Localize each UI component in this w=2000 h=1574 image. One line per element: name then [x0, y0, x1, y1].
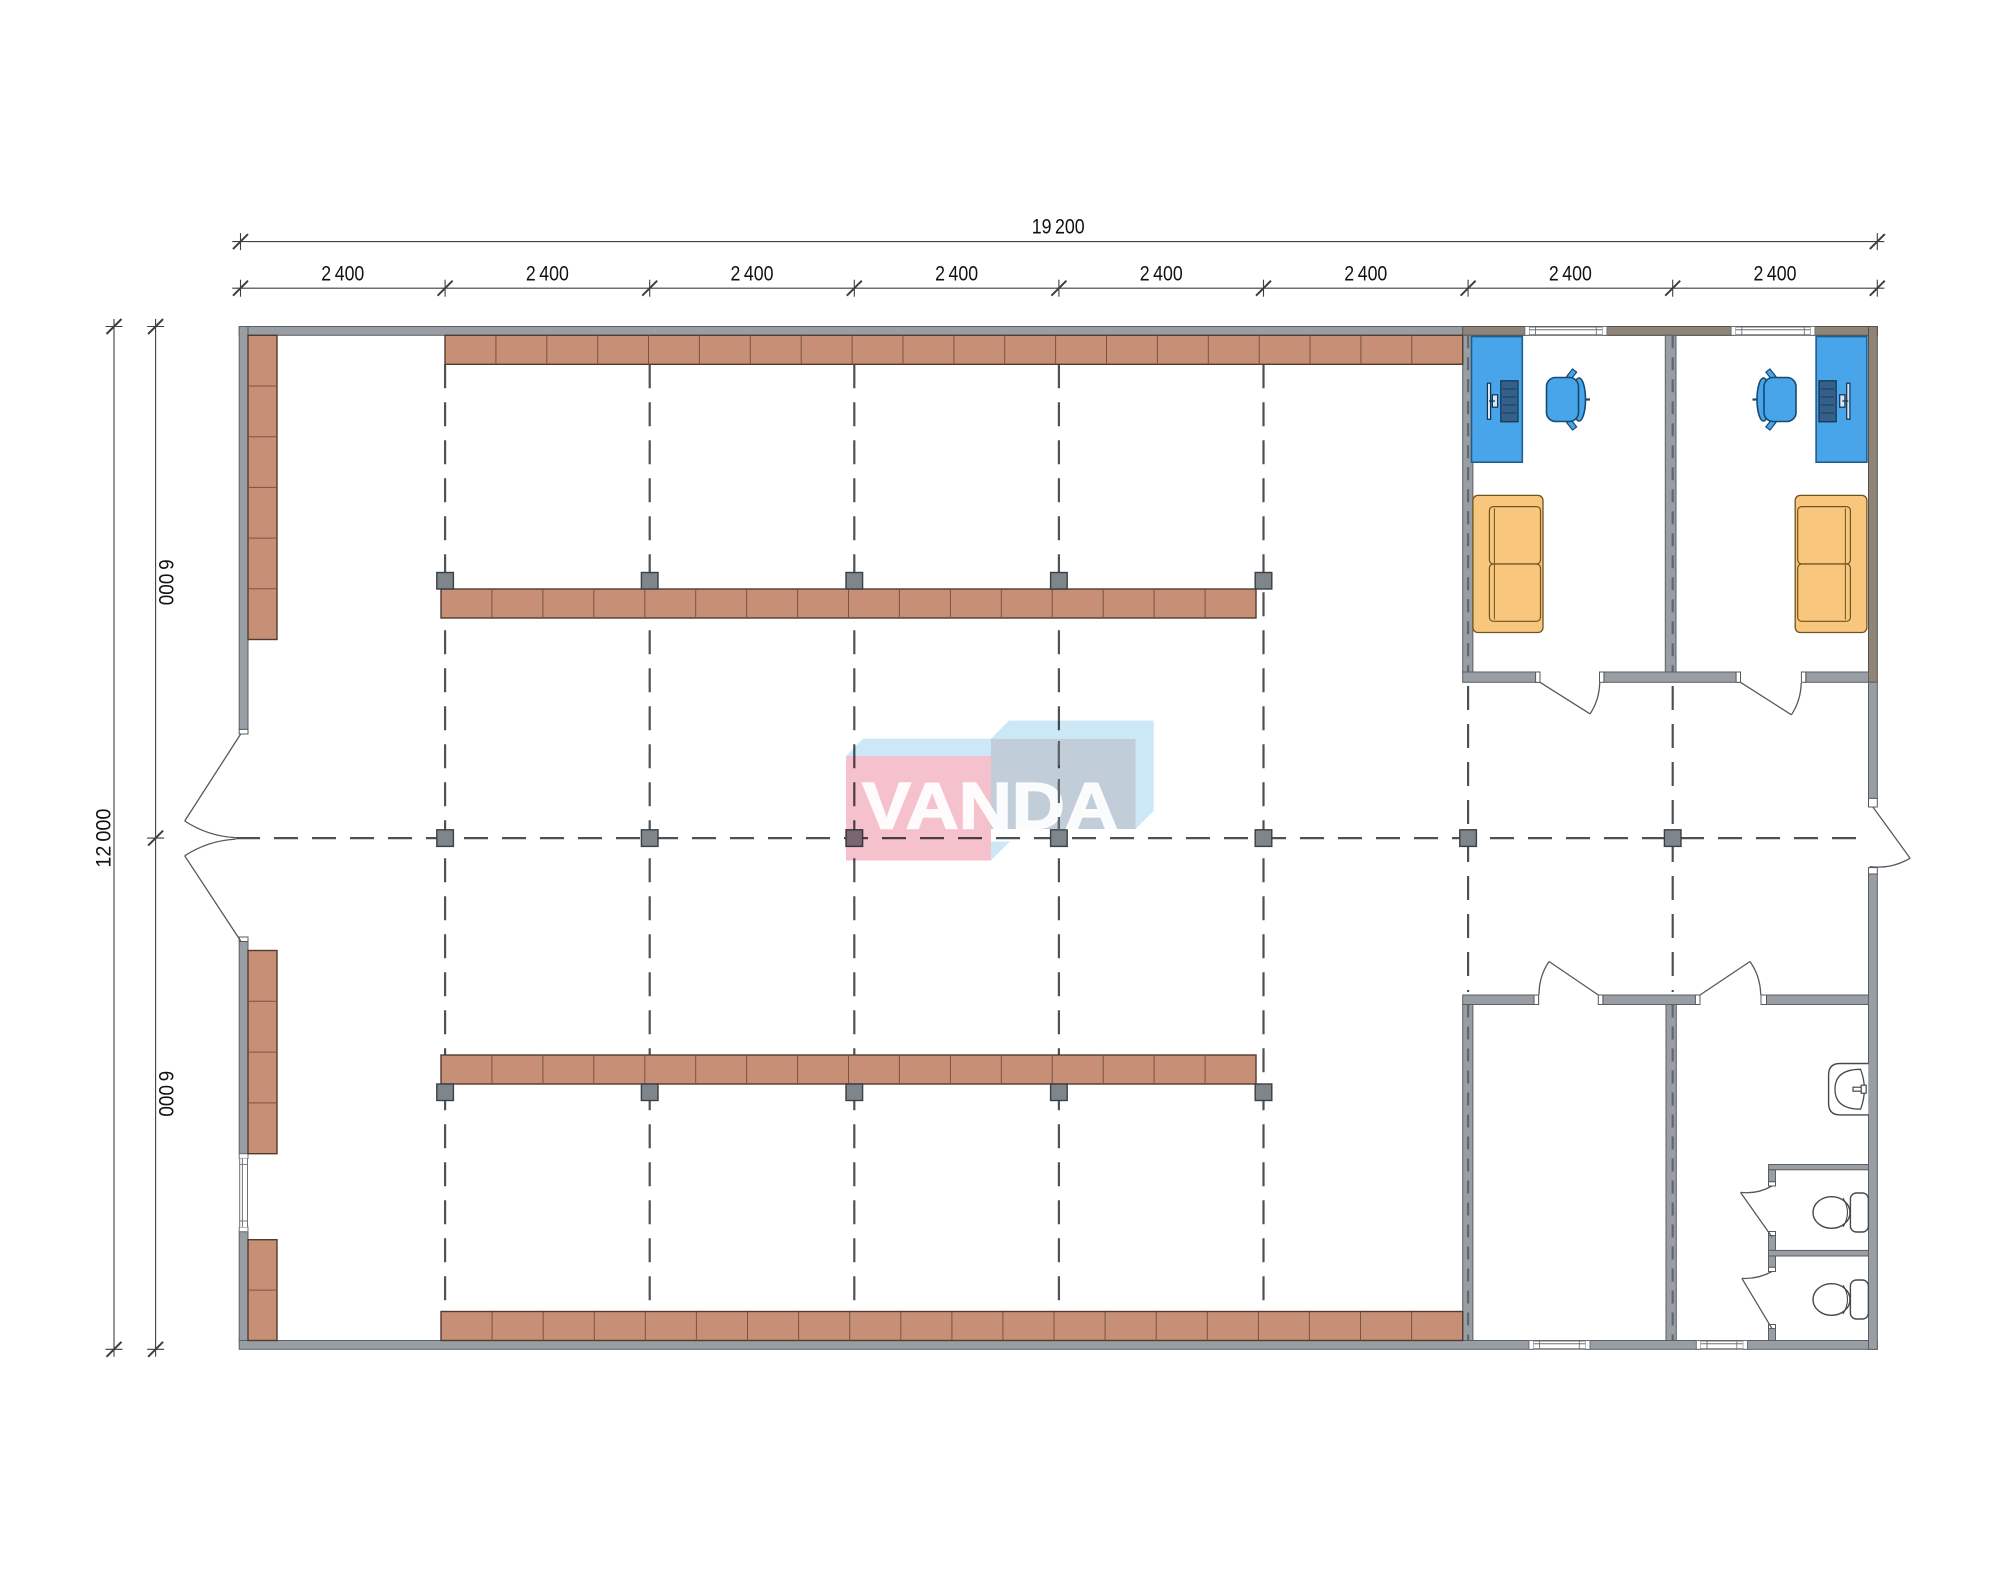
svg-text:2 400: 2 400 [1140, 262, 1183, 285]
svg-text:2 400: 2 400 [731, 262, 774, 285]
svg-text:2 400: 2 400 [1754, 262, 1797, 285]
svg-text:6 000: 6 000 [154, 1071, 177, 1117]
svg-text:19 200: 19 200 [1032, 216, 1085, 239]
svg-text:2 400: 2 400 [1549, 262, 1592, 285]
svg-text:6 000: 6 000 [154, 559, 177, 605]
svg-text:VANDA: VANDA [862, 768, 1118, 842]
svg-text:12 000: 12 000 [93, 809, 116, 868]
svg-text:2 400: 2 400 [526, 262, 569, 285]
svg-text:2 400: 2 400 [1344, 262, 1387, 285]
svg-text:2 400: 2 400 [935, 262, 978, 285]
svg-text:2 400: 2 400 [321, 262, 364, 285]
